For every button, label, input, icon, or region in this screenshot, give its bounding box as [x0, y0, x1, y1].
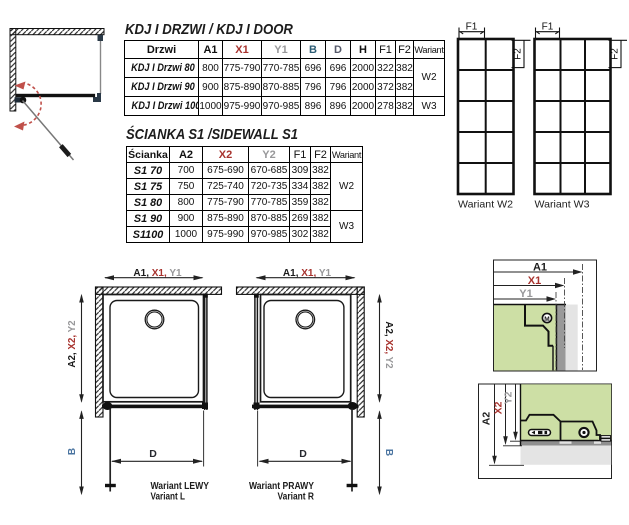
svg-text:M: M	[544, 316, 549, 323]
svg-text:D: D	[299, 448, 307, 460]
svg-text:A2, X2, Y2: A2, X2, Y2	[67, 320, 78, 368]
svg-text:F1: F1	[466, 21, 478, 32]
svg-text:F2: F2	[610, 48, 621, 60]
svg-text:Wariant LEWY: Wariant LEWY	[151, 481, 210, 492]
svg-text:A1, X1, Y1: A1, X1, Y1	[283, 268, 332, 279]
svg-text:Variant R: Variant R	[278, 492, 315, 503]
svg-text:Wariant PRAWY: Wariant PRAWY	[249, 481, 314, 492]
svg-text:D: D	[149, 448, 157, 460]
svg-text:X1: X1	[528, 275, 541, 287]
svg-text:F1: F1	[542, 21, 554, 32]
svg-text:Y2: Y2	[503, 391, 515, 404]
svg-text:Wariant W3: Wariant W3	[535, 199, 590, 211]
svg-text:Variant L: Variant L	[151, 492, 186, 503]
svg-text:A2, X2, Y2: A2, X2, Y2	[383, 321, 394, 369]
svg-text:B: B	[67, 448, 78, 455]
svg-text:A2: A2	[481, 412, 493, 426]
svg-text:Y1: Y1	[519, 288, 532, 300]
svg-text:A1, X1, Y1: A1, X1, Y1	[133, 268, 182, 279]
svg-text:F2: F2	[513, 48, 524, 60]
svg-text:Wariant W2: Wariant W2	[458, 199, 513, 211]
svg-text:A1: A1	[533, 261, 547, 273]
svg-text:B: B	[383, 449, 394, 456]
